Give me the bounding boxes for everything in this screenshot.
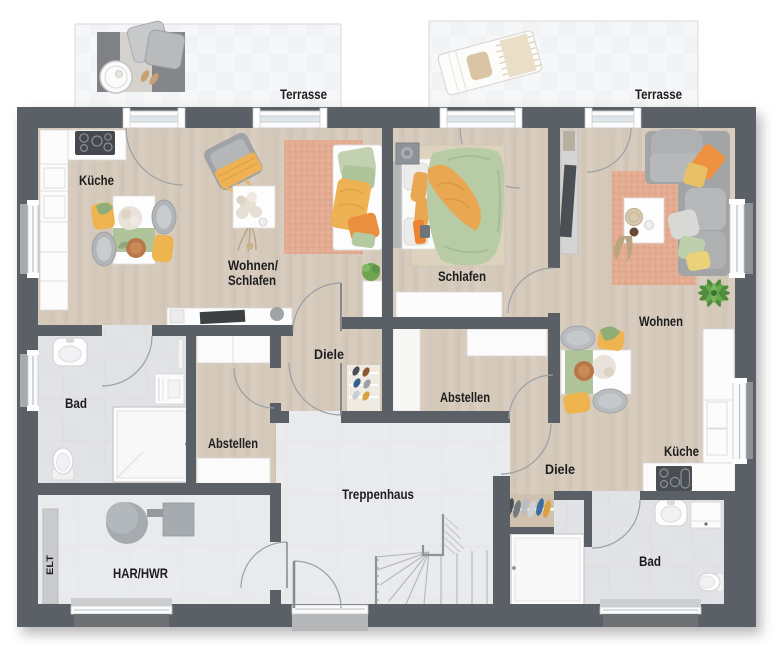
- svg-text:Küche: Küche: [79, 172, 114, 188]
- svg-text:Wohnen: Wohnen: [639, 313, 683, 329]
- svg-text:Abstellen: Abstellen: [208, 435, 258, 451]
- svg-text:HAR/HWR: HAR/HWR: [113, 565, 168, 581]
- svg-text:Bad: Bad: [639, 553, 661, 569]
- svg-text:Diele: Diele: [314, 346, 344, 362]
- svg-text:Küche: Küche: [664, 443, 699, 459]
- svg-text:Abstellen: Abstellen: [440, 389, 490, 405]
- svg-text:Wohnen/: Wohnen/: [228, 257, 278, 273]
- svg-text:Schlafen: Schlafen: [228, 272, 276, 288]
- svg-text:Bad: Bad: [65, 395, 87, 411]
- svg-text:Terrasse: Terrasse: [635, 86, 682, 102]
- svg-text:Treppenhaus: Treppenhaus: [342, 486, 414, 502]
- svg-text:ELT: ELT: [45, 555, 56, 575]
- svg-text:Terrasse: Terrasse: [280, 86, 327, 102]
- svg-text:Diele: Diele: [545, 461, 575, 477]
- svg-text:Schlafen: Schlafen: [438, 268, 486, 284]
